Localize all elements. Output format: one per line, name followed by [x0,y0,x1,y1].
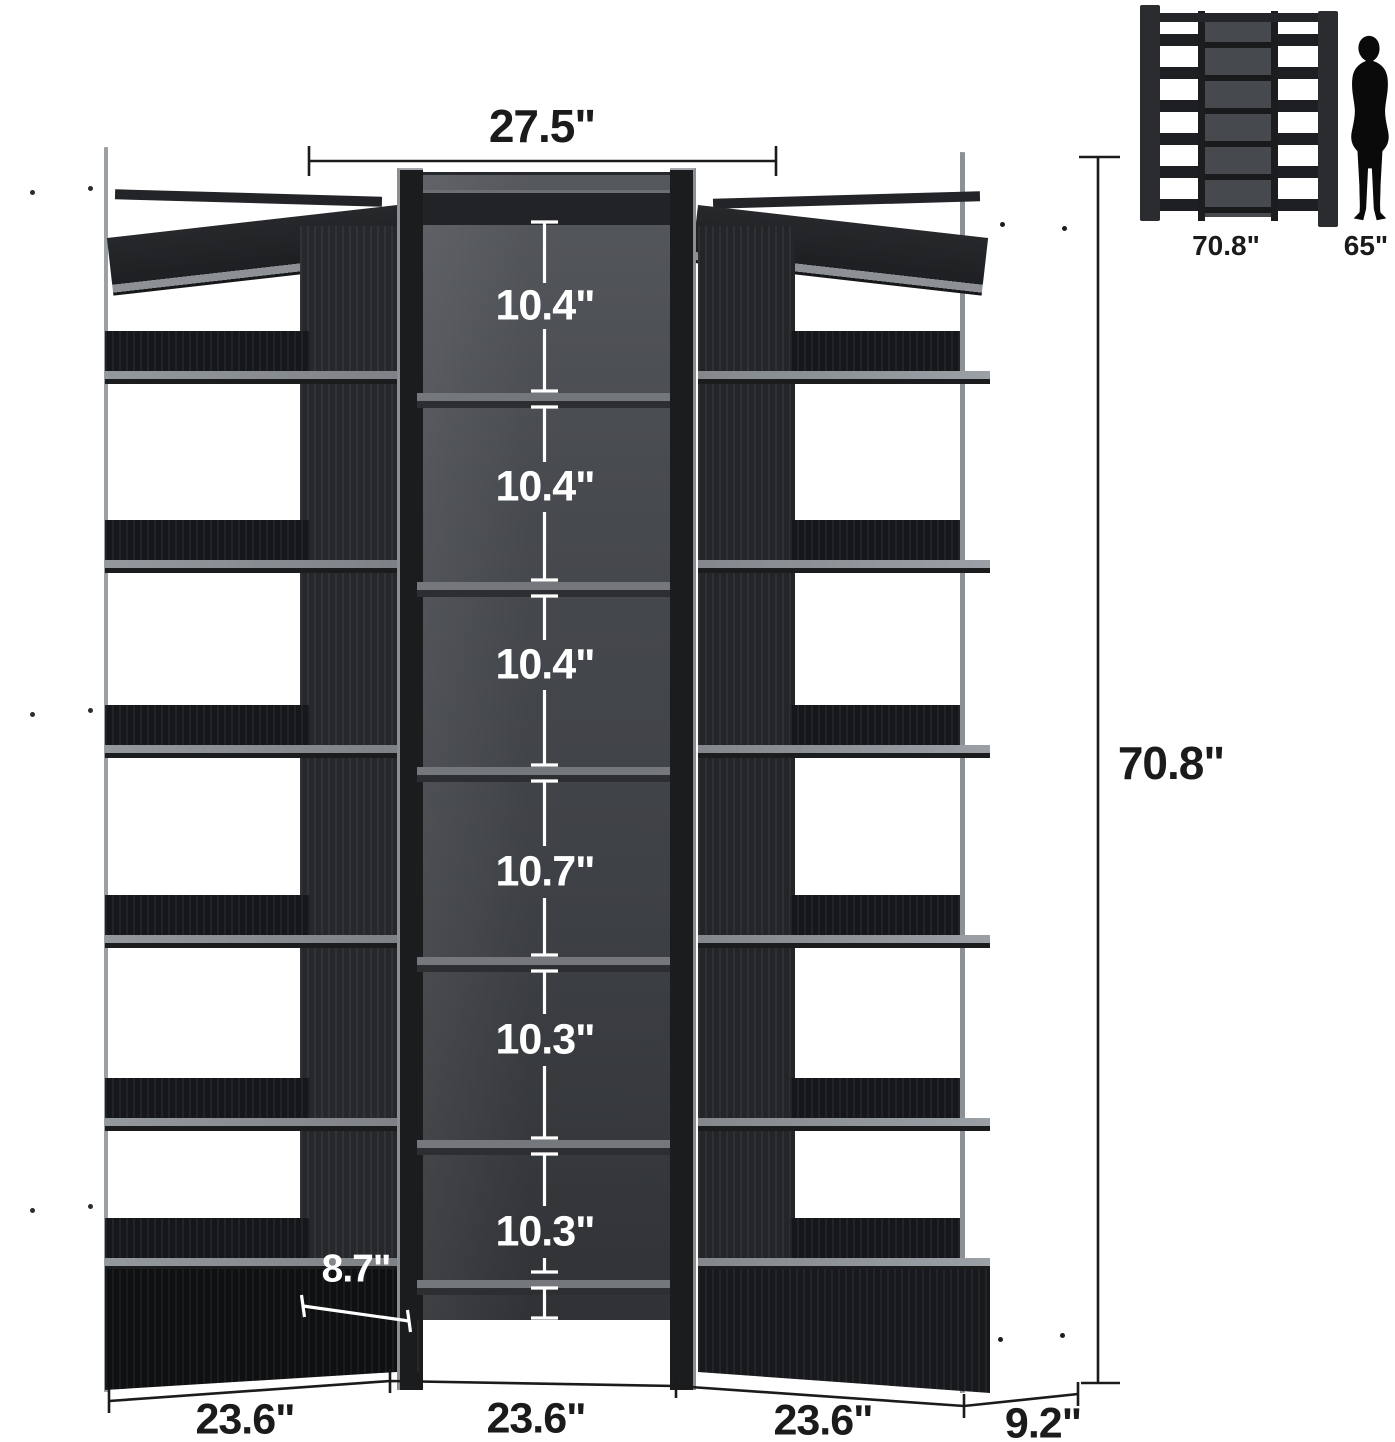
dim-shelf-gap-2: 10.4" [495,466,594,509]
mini-left-upright [1140,5,1160,221]
mini-right-upright [1318,11,1338,227]
mini-top-board [1160,13,1318,22]
mini-left-divider [1198,11,1205,221]
size-reference-inset: 70.8" 65" [1130,0,1395,275]
mini-right-divider [1271,11,1278,221]
dim-bottom-width-left: 23.6" [195,1399,294,1442]
person-silhouette-icon [1340,34,1395,226]
product-dimension-diagram: 70.8" 65" 27.5" 10.4" 10.4" 10.4" 10.7" … [0,0,1395,1442]
dim-shelf-gap-4: 10.7" [495,851,594,894]
dim-side-depth: 9.2" [1005,1403,1081,1442]
dim-total-height: 70.8" [1118,740,1224,786]
dim-shelf-gap-3: 10.4" [495,644,594,687]
inset-height-label: 70.8" [1192,232,1260,260]
dim-base-height: 2.3" [511,1324,580,1363]
mini-right-wing [1278,13,1318,218]
dim-shelf-gap-6: 10.3" [495,1211,594,1254]
dim-shelf-gap-1: 10.4" [495,285,594,328]
dim-shelf-depth: 8.7" [322,1250,391,1289]
dim-bottom-width-center: 23.6" [486,1398,585,1441]
dim-shelf-gap-5: 10.3" [495,1019,594,1062]
dim-bottom-width-right: 23.6" [773,1400,872,1442]
dim-top-width: 27.5" [489,103,595,149]
inset-mini-unit [1140,3,1338,227]
mini-center-column [1205,15,1271,217]
mini-left-wing [1160,13,1200,218]
inset-person-height-label: 65" [1344,232,1388,260]
